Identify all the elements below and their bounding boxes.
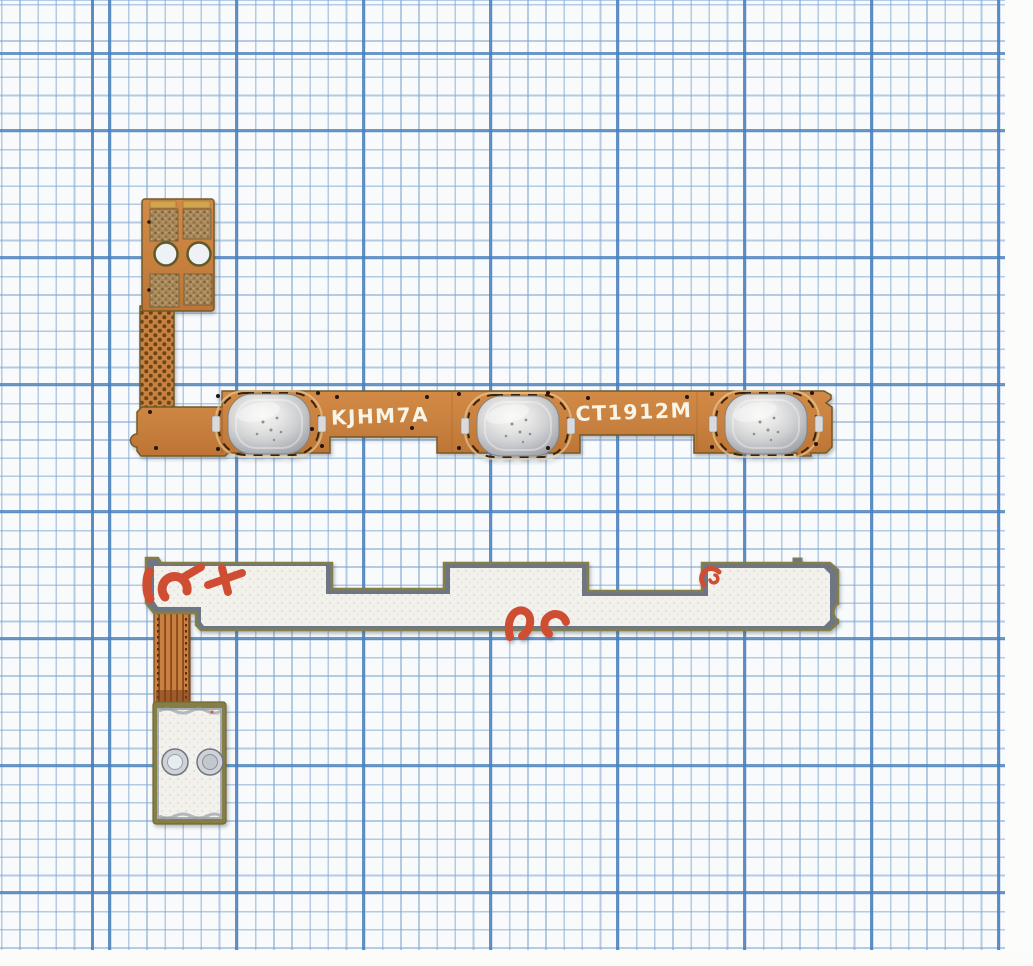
screenshot-root: KJHM7A CT1912M xyxy=(0,0,1033,966)
silkscreen-marking-right: CT1912M xyxy=(575,398,693,426)
flex-mesh-tail xyxy=(140,306,174,408)
solder-pad xyxy=(183,209,211,239)
pad-hole xyxy=(162,749,188,775)
stiffener-strip-back xyxy=(146,558,838,637)
silkscreen-marking-left: KJHM7A xyxy=(331,402,430,429)
gold-contact-strip xyxy=(183,201,210,208)
solder-pad xyxy=(184,274,212,305)
solder-pad xyxy=(150,209,178,241)
pad-hole xyxy=(197,749,223,775)
solder-pad xyxy=(150,274,179,307)
flex-cables-photo: KJHM7A CT1912M xyxy=(0,0,1033,966)
flex-ribbon-tail xyxy=(154,608,190,704)
bottom-flex-cable xyxy=(146,558,838,824)
screw-pad xyxy=(153,702,226,824)
alignment-hole xyxy=(155,243,178,266)
alignment-hole xyxy=(188,243,211,266)
connector-pad-block xyxy=(142,199,214,311)
gold-contact-strip xyxy=(150,201,176,208)
top-flex-cable: KJHM7A CT1912M xyxy=(131,199,833,459)
